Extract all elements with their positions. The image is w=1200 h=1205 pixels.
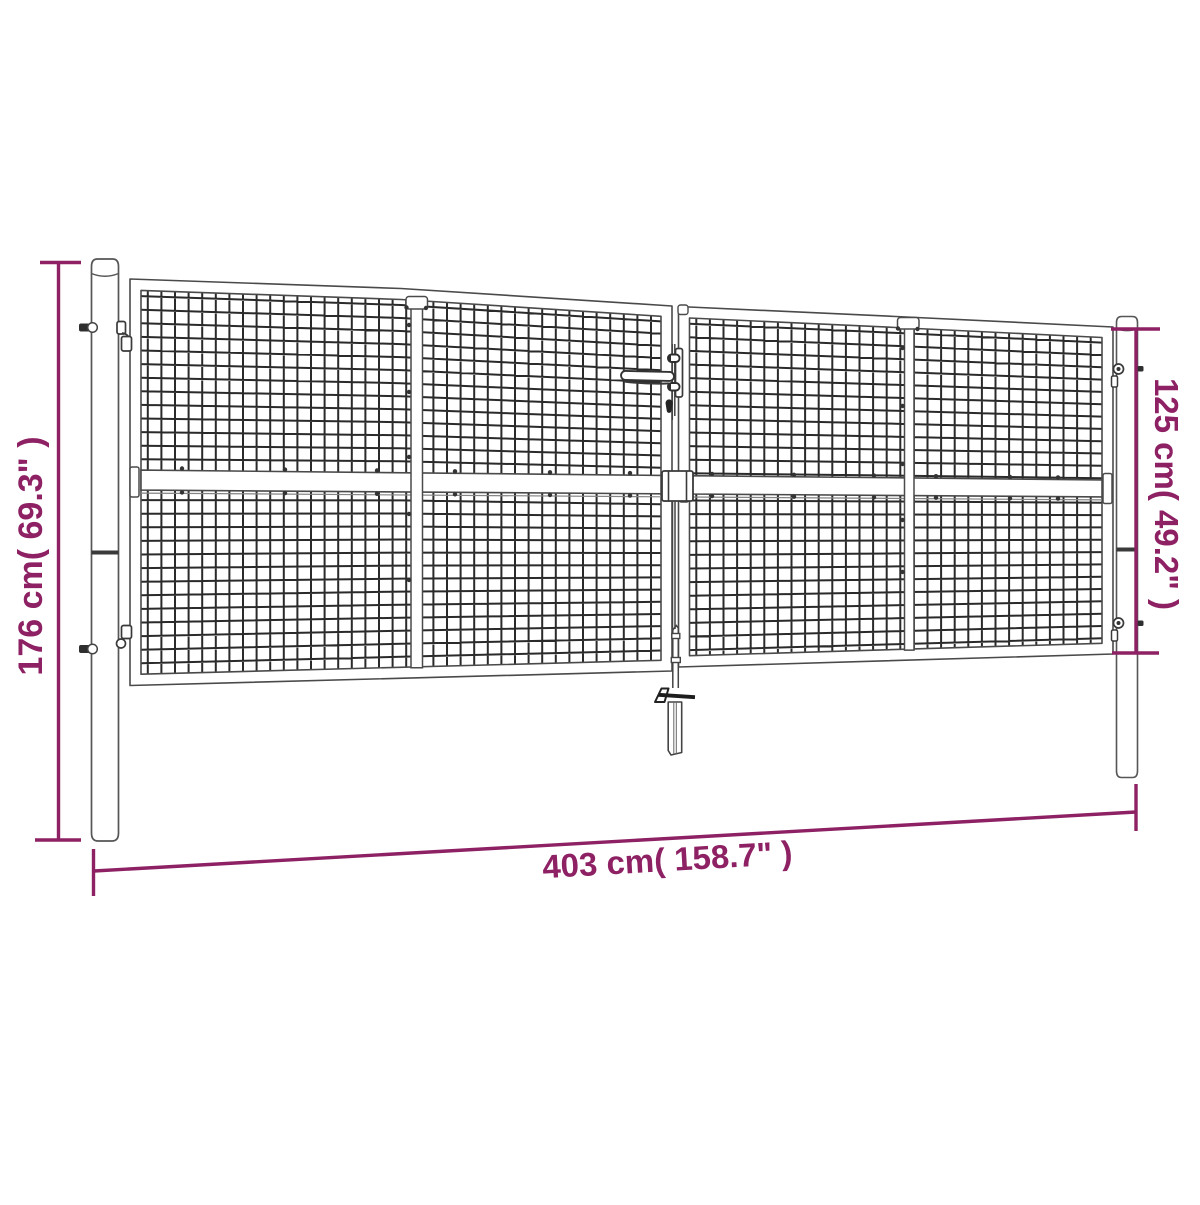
- svg-text:125 cm( 49.2" ): 125 cm( 49.2" ): [1148, 378, 1185, 610]
- svg-text:176 cm( 69.3" ): 176 cm( 69.3" ): [12, 436, 50, 675]
